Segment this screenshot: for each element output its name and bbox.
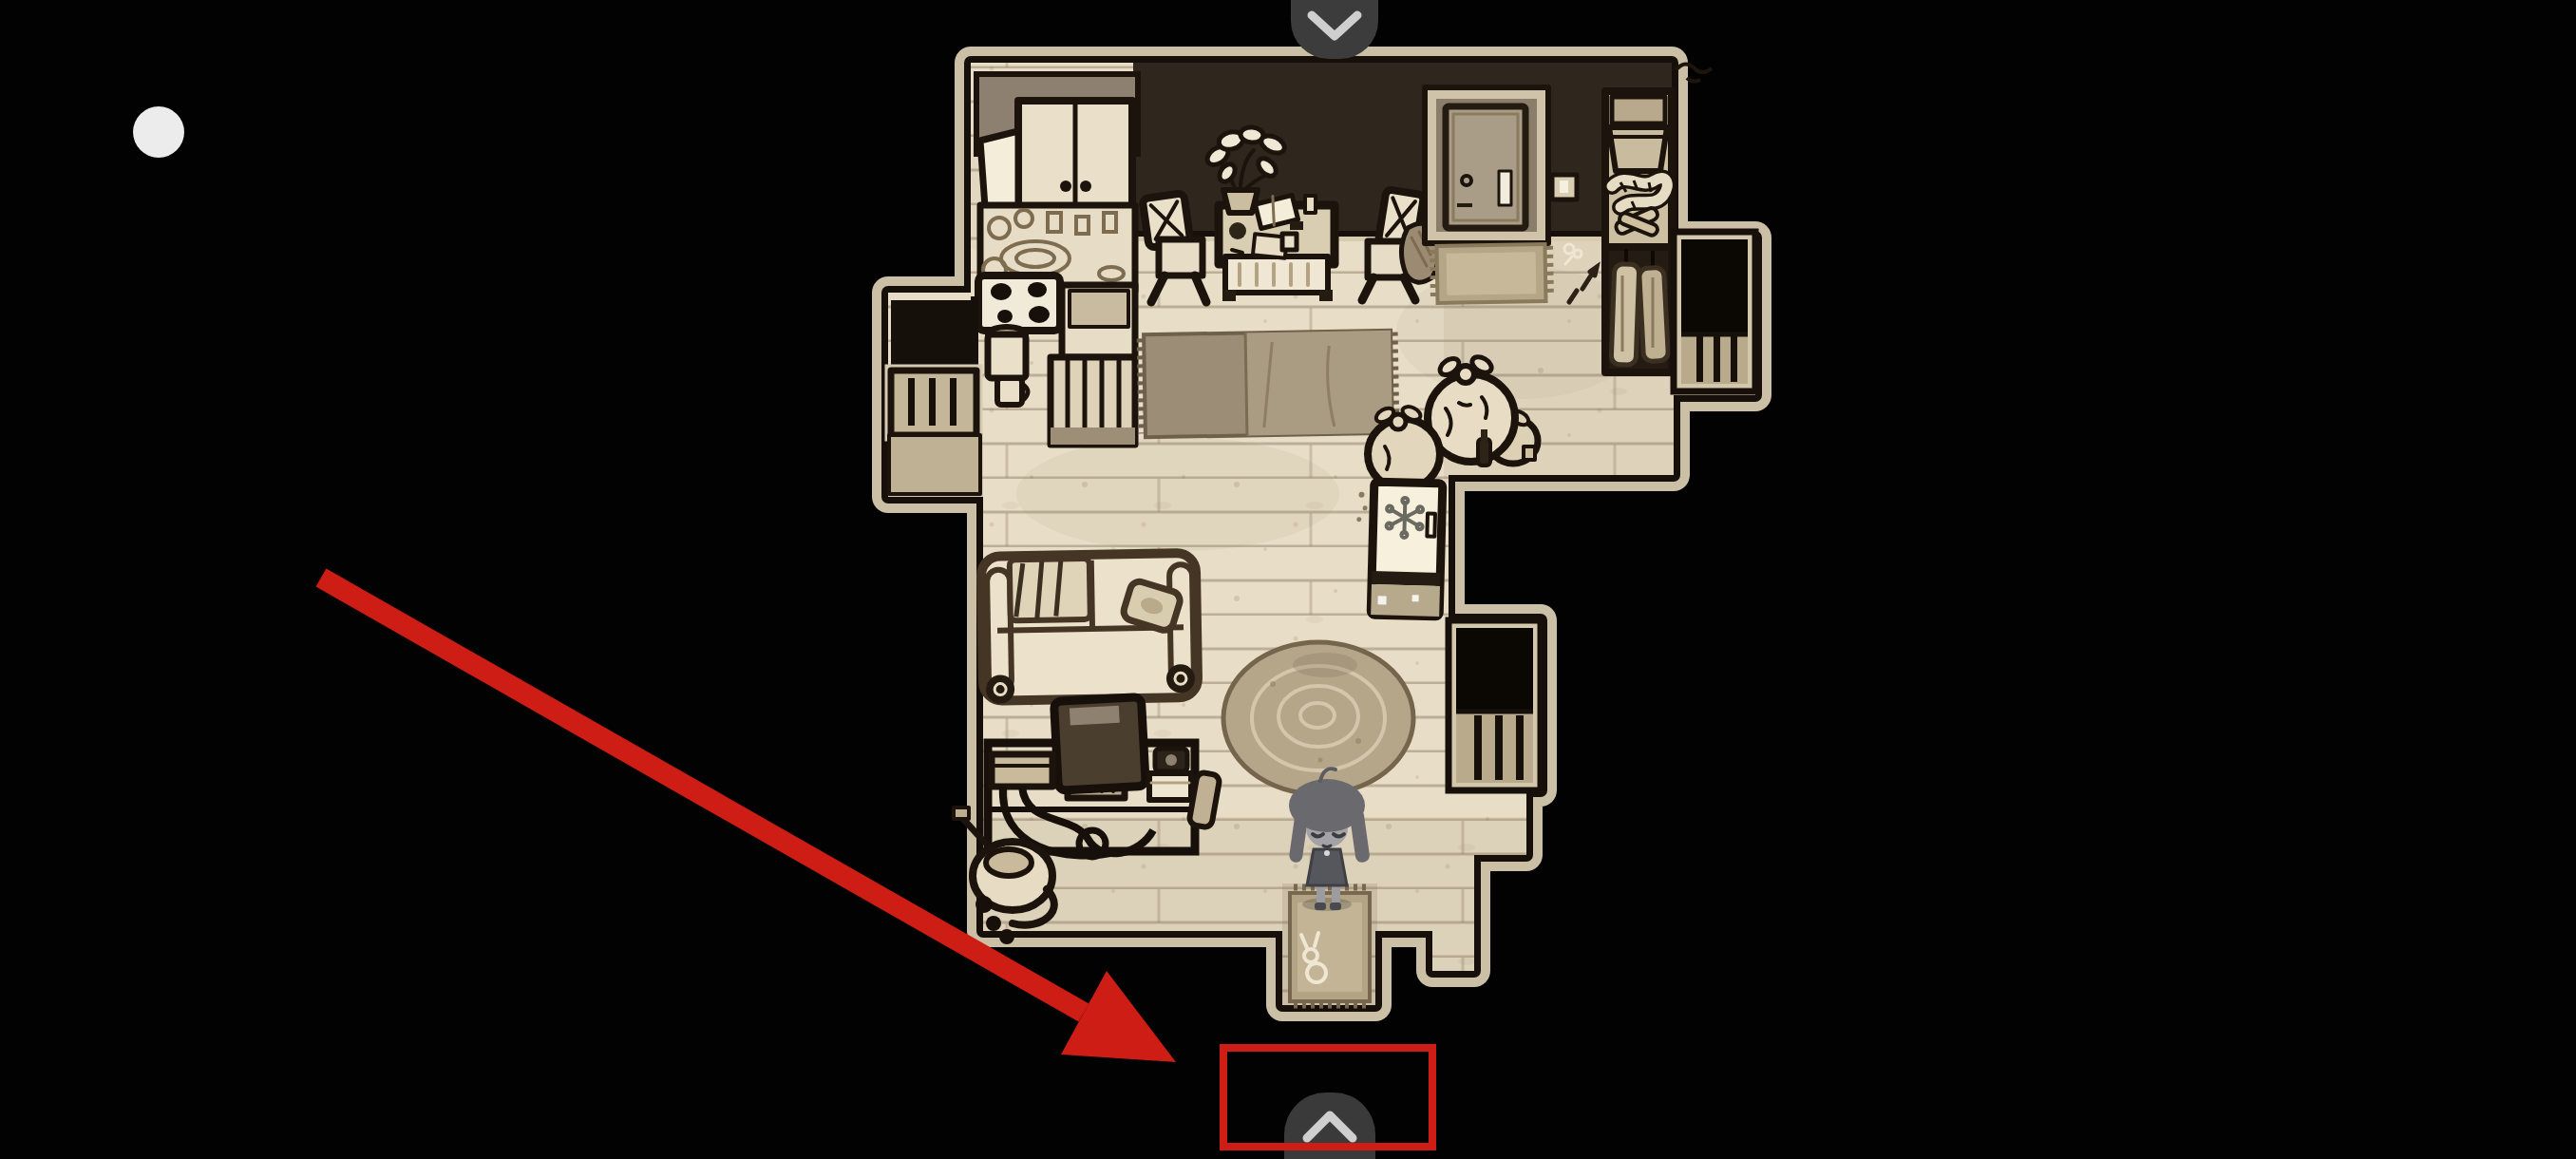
cup bbox=[1524, 446, 1535, 460]
door-handle bbox=[1499, 171, 1511, 205]
kitchen-floor-strip bbox=[889, 435, 980, 494]
window-lower-right bbox=[1449, 620, 1541, 790]
hanging-coats bbox=[1605, 247, 1672, 372]
counter-panel bbox=[1070, 291, 1128, 327]
couch bbox=[981, 553, 1199, 704]
leg bbox=[1316, 885, 1325, 904]
mouth bbox=[1323, 845, 1331, 847]
bottle bbox=[1478, 439, 1490, 465]
balcony-window-left bbox=[887, 367, 980, 439]
leg bbox=[1332, 885, 1340, 904]
shoe bbox=[1330, 902, 1341, 910]
joystick-dot[interactable]: Touch input indicator bbox=[133, 106, 184, 158]
bucket bbox=[1609, 127, 1667, 171]
kitchen-dark-counter bbox=[891, 300, 978, 367]
house-map: Apartment interior map Kitchen bbox=[887, 63, 1757, 1016]
shelf-box bbox=[1612, 97, 1665, 123]
spiral-rug bbox=[1223, 642, 1413, 794]
shoe bbox=[1315, 902, 1326, 910]
entry-rug bbox=[1432, 244, 1550, 303]
light-switch bbox=[1552, 175, 1577, 199]
area-rug bbox=[1140, 331, 1396, 438]
game-console bbox=[992, 754, 1052, 787]
cabinet-knob bbox=[1080, 180, 1091, 192]
stove bbox=[978, 275, 1060, 331]
game-canvas: Apartment interior map Apartment interio… bbox=[0, 0, 2576, 1159]
slatted-cabinet bbox=[1051, 357, 1135, 445]
game-screen: Apartment interior map Apartment interio… bbox=[0, 0, 2576, 1159]
window-upper-right bbox=[1674, 232, 1755, 391]
cabinet-knob bbox=[1060, 180, 1071, 192]
front-door bbox=[1425, 87, 1548, 243]
books bbox=[1149, 773, 1191, 800]
